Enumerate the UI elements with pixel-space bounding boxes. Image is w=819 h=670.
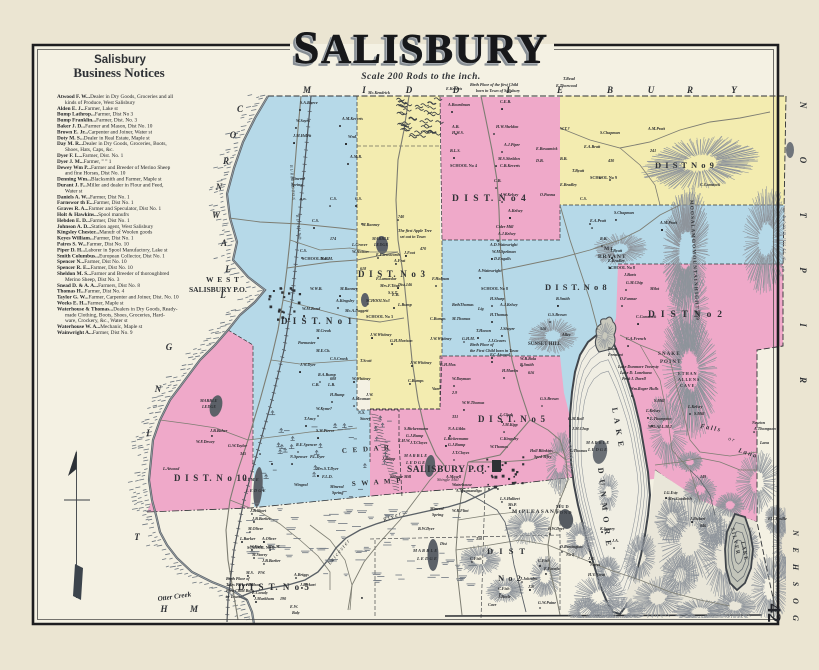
svg-text:A.Thompson: A.Thompson bbox=[753, 426, 776, 431]
svg-text:C.S.: C.S. bbox=[312, 218, 319, 223]
svg-text:H.W.S.: H.W.S. bbox=[451, 130, 464, 135]
svg-text:F.Lamordur: F.Lamordur bbox=[376, 276, 397, 281]
svg-text:MARBLE: MARBLE bbox=[199, 398, 218, 403]
svg-text:W E S T: W E S T bbox=[206, 275, 240, 284]
svg-text:608: 608 bbox=[330, 376, 336, 381]
svg-text:L.Thomas: L.Thomas bbox=[569, 448, 588, 453]
svg-text:J.B.Baher: J.B.Baher bbox=[209, 428, 228, 433]
svg-text:L.Bickermann: L.Bickermann bbox=[443, 436, 469, 441]
svg-text:E.Bradley: E.Bradley bbox=[607, 258, 625, 263]
svg-text:Lana: Lana bbox=[759, 440, 769, 445]
svg-text:M: M bbox=[302, 85, 312, 95]
svg-text:LEDGE: LEDGE bbox=[201, 404, 216, 409]
svg-text:D I S T. N o 10: D I S T. N o 10 bbox=[174, 473, 248, 483]
svg-text:Cave: Cave bbox=[488, 602, 497, 607]
svg-text:L.Barker: L.Barker bbox=[239, 536, 256, 541]
svg-text:D I S T. N o 8: D I S T. N o 8 bbox=[545, 282, 608, 292]
svg-text:J.T.Cloyes: J.T.Cloyes bbox=[409, 440, 428, 445]
svg-text:Tales Parker the: Tales Parker the bbox=[226, 582, 254, 587]
svg-text:M.S.: M.S. bbox=[245, 570, 254, 575]
svg-text:Storey: Storey bbox=[360, 416, 371, 421]
svg-text:W.M.Bond: W.M.Bond bbox=[302, 306, 321, 311]
svg-text:R.B.: R.B. bbox=[600, 236, 608, 241]
svg-text:Lake Dunmore Travesty: Lake Dunmore Travesty bbox=[617, 364, 659, 369]
svg-text:241: 241 bbox=[649, 148, 656, 153]
svg-text:P O I N T: P O I N T bbox=[660, 360, 681, 365]
svg-text:J.M.Chop: J.M.Chop bbox=[571, 426, 589, 431]
svg-text:P.L.Dyer: P.L.Dyer bbox=[310, 454, 325, 459]
svg-text:T.Honon: T.Honon bbox=[476, 328, 492, 333]
svg-text:M A R B L E: M A R B L E bbox=[412, 548, 437, 553]
svg-text:No 2: No 2 bbox=[565, 552, 574, 557]
svg-text:Holl Blinkins: Holl Blinkins bbox=[529, 448, 553, 453]
svg-text:SUNSET HILL: SUNSET HILL bbox=[528, 342, 562, 347]
svg-text:Birth Place of the first Child: Birth Place of the first Child bbox=[469, 82, 519, 87]
svg-text:N o 2: N o 2 bbox=[498, 573, 522, 583]
svg-text:E.Keverts: E.Keverts bbox=[445, 86, 463, 91]
svg-text:H.Thomas: H.Thomas bbox=[489, 312, 508, 317]
svg-text:J.Rickart: J.Rickart bbox=[299, 582, 316, 587]
svg-text:C.Fish: C.Fish bbox=[470, 556, 482, 561]
svg-text:M t P L E A S A N T: M t P L E A S A N T bbox=[512, 509, 559, 515]
svg-text:S.W.Pierce: S.W.Pierce bbox=[316, 428, 335, 433]
svg-text:in Town: in Town bbox=[226, 594, 240, 599]
svg-text:331: 331 bbox=[451, 414, 458, 419]
svg-text:W.F.Dewey: W.F.Dewey bbox=[196, 439, 215, 444]
svg-text:Birth Place of: Birth Place of bbox=[469, 342, 494, 347]
svg-text:SALISBURY: SALISBURY bbox=[293, 22, 548, 74]
svg-text:C.B.Keverts: C.B.Keverts bbox=[500, 163, 520, 168]
svg-text:Waterhouse: Waterhouse bbox=[452, 482, 472, 487]
svg-text:L E D G E: L E D G E bbox=[416, 556, 437, 561]
svg-text:S.Bickermann: S.Bickermann bbox=[404, 426, 429, 431]
svg-text:E.H.W.: E.H.W. bbox=[397, 438, 410, 443]
svg-text:L: L bbox=[224, 264, 231, 274]
svg-text:516: 516 bbox=[540, 326, 547, 331]
svg-text:W.Thomas: W.Thomas bbox=[490, 444, 508, 449]
svg-text:Milot: Milot bbox=[649, 286, 660, 291]
svg-text:C: C bbox=[237, 104, 244, 114]
svg-text:C.S.: C.S. bbox=[580, 196, 587, 201]
svg-text:T: T bbox=[134, 532, 140, 542]
svg-text:O.Fannar: O.Fannar bbox=[620, 296, 637, 301]
svg-text:J.Boyle: J.Boyle bbox=[497, 594, 511, 599]
svg-text:L E D G E: L E D G E bbox=[245, 488, 266, 493]
svg-text:BethThomas: BethThomas bbox=[451, 302, 474, 307]
svg-text:W.Sayes: W.Sayes bbox=[296, 118, 310, 123]
svg-text:N.Spenser: N.Spenser bbox=[289, 454, 308, 459]
svg-text:D I S T: D I S T bbox=[487, 546, 527, 556]
svg-text:P.W.: P.W. bbox=[258, 570, 265, 575]
svg-text:K.Severy: K.Severy bbox=[599, 526, 615, 531]
svg-text:A.Kelsey: A.Kelsey bbox=[507, 208, 523, 213]
svg-text:LEDGE: LEDGE bbox=[373, 242, 388, 247]
svg-text:T.Ancy: T.Ancy bbox=[304, 416, 316, 421]
svg-text:M.Thomas: M.Thomas bbox=[451, 316, 471, 321]
svg-text:M: M bbox=[189, 604, 199, 614]
svg-text:Roun: Roun bbox=[608, 346, 618, 351]
svg-text:L.Grover: L.Grover bbox=[351, 242, 368, 247]
svg-text:B.B.: B.B. bbox=[559, 156, 568, 161]
svg-text:C A V E: C A V E bbox=[680, 383, 695, 388]
svg-text:L E D G E: L E D G E bbox=[587, 447, 607, 452]
svg-text:Alley: Alley bbox=[561, 332, 571, 337]
svg-text:D I S T. N o 1: D I S T. N o 1 bbox=[281, 316, 353, 326]
svg-text:W.T.?: W.T.? bbox=[560, 126, 570, 131]
svg-text:C.Bumps: C.Bumps bbox=[408, 378, 424, 383]
svg-text:SCHOOLNo3: SCHOOLNo3 bbox=[366, 298, 390, 303]
svg-text:A.Frat: A.Frat bbox=[393, 258, 406, 263]
svg-text:E.A.Bratt: E.A.Bratt bbox=[583, 144, 601, 149]
svg-text:S: S bbox=[791, 582, 800, 587]
svg-text:SCHOOL No 8: SCHOOL No 8 bbox=[481, 286, 508, 291]
svg-text:I.G.Esty: I.G.Esty bbox=[663, 490, 678, 495]
svg-text:J.Shayer: J.Shayer bbox=[499, 326, 515, 331]
svg-text:Mrs.S.T.Dyer: Mrs.S.T.Dyer bbox=[315, 466, 339, 471]
svg-text:G.M.Roll: G.M.Roll bbox=[568, 416, 585, 421]
svg-text:E.Thorwood: E.Thorwood bbox=[555, 83, 578, 88]
svg-text:B.L.S.: B.L.S. bbox=[449, 148, 461, 153]
svg-text:L E D G E: L E D G E bbox=[405, 460, 425, 465]
svg-text:T.Read: T.Read bbox=[563, 76, 576, 81]
svg-text:350: 350 bbox=[475, 536, 482, 541]
svg-text:J.Markham: J.Markham bbox=[253, 596, 274, 601]
svg-text:G.H.Morison: G.H.Morison bbox=[390, 338, 413, 343]
svg-text:R.E.Spencer: R.E.Spencer bbox=[296, 442, 318, 447]
svg-text:J.Bump: J.Bump bbox=[381, 456, 395, 461]
svg-text:M.Storey: M.Storey bbox=[251, 552, 268, 557]
svg-text:T.Scott: T.Scott bbox=[360, 358, 372, 363]
svg-text:Mt.P.: Mt.P. bbox=[507, 502, 517, 507]
svg-text:618: 618 bbox=[360, 266, 366, 271]
svg-text:S.S.T.: S.S.T. bbox=[388, 290, 398, 295]
svg-text:J.W.Whitney: J.W.Whitney bbox=[429, 336, 452, 341]
svg-text:S.Chapman: S.Chapman bbox=[600, 130, 621, 135]
svg-text:G.M.Chip: G.M.Chip bbox=[626, 280, 643, 285]
svg-text:345: 345 bbox=[239, 451, 246, 456]
svg-text:Mrs.M.: Mrs.M. bbox=[267, 544, 281, 549]
svg-text:P: P bbox=[798, 267, 808, 273]
svg-text:Parmaster: Parmaster bbox=[298, 340, 316, 345]
svg-text:C.S.: C.S. bbox=[355, 196, 362, 201]
svg-text:A.Mosell: A.Mosell bbox=[445, 474, 462, 479]
svg-text:O: O bbox=[791, 598, 800, 604]
svg-text:J.W.: J.W. bbox=[365, 392, 373, 397]
svg-text:C.B.: C.B. bbox=[312, 382, 320, 387]
svg-text:A.Kingsley: A.Kingsley bbox=[335, 298, 354, 303]
svg-text:J.Rickert: J.Rickert bbox=[689, 516, 706, 521]
svg-text:J.R.: J.R. bbox=[587, 556, 595, 561]
svg-text:Lake D. Lonehana: Lake D. Lonehana bbox=[619, 370, 652, 375]
svg-text:M U D: M U D bbox=[556, 504, 569, 509]
svg-text:P O N D: P O N D bbox=[556, 510, 572, 515]
svg-text:M.Creak: M.Creak bbox=[315, 328, 332, 333]
svg-text:W.W.B.: W.W.B. bbox=[310, 286, 322, 291]
svg-text:C.Fish: C.Fish bbox=[538, 558, 550, 563]
svg-text:Spring: Spring bbox=[332, 490, 343, 495]
svg-text:Vam: Vam bbox=[432, 386, 440, 391]
svg-text:Shingle Mill: Shingle Mill bbox=[390, 474, 412, 479]
svg-text:T.Byatt: T.Byatt bbox=[572, 168, 585, 173]
svg-text:Peak I. Dorell: Peak I. Dorell bbox=[622, 376, 647, 381]
svg-text:C.S.: C.S. bbox=[330, 196, 337, 201]
svg-text:F.C.Atwood: F.C.Atwood bbox=[490, 352, 511, 357]
svg-text:SALISBURY P.O.: SALISBURY P.O. bbox=[189, 285, 247, 294]
svg-text:616: 616 bbox=[528, 370, 535, 375]
svg-text:Scale 200 Rods to the inch.: Scale 200 Rods to the inch. bbox=[361, 72, 481, 82]
svg-text:N: N bbox=[798, 101, 808, 109]
svg-text:D.Engalls: D.Engalls bbox=[493, 256, 511, 261]
svg-text:Business Notices: Business Notices bbox=[73, 65, 164, 80]
svg-text:149: 149 bbox=[700, 474, 706, 479]
svg-text:W.W.Thomas: W.W.Thomas bbox=[462, 400, 485, 405]
svg-text:C.Comstock: C.Comstock bbox=[700, 182, 721, 187]
svg-text:The first Apple Tree: The first Apple Tree bbox=[398, 228, 432, 233]
svg-text:L.Clark: L.Clark bbox=[499, 412, 514, 417]
svg-text:G.S.Brown: G.S.Brown bbox=[548, 312, 567, 317]
svg-text:J.W.Dyer: J.W.Dyer bbox=[299, 362, 316, 367]
svg-text:J.Barts: J.Barts bbox=[623, 272, 637, 277]
svg-text:B.W.Dyer: B.W.Dyer bbox=[547, 526, 565, 531]
svg-text:J.P.: J.P. bbox=[527, 584, 534, 589]
svg-text:R: R bbox=[686, 85, 693, 95]
svg-text:A.J.Kelsey: A.J.Kelsey bbox=[499, 302, 518, 307]
svg-text:J.M.Holett: J.M.Holett bbox=[292, 133, 312, 138]
svg-text:E T H A N: E T H A N bbox=[678, 371, 696, 376]
svg-text:E.Bowamick: E.Bowamick bbox=[535, 146, 558, 151]
svg-text:F.Holman: F.Holman bbox=[432, 276, 450, 281]
svg-text:E.Farnsworth: E.Farnsworth bbox=[375, 252, 401, 257]
svg-text:J.Johndro: J.Johndro bbox=[519, 576, 537, 581]
svg-text:W.Whitney: W.Whitney bbox=[352, 376, 371, 381]
svg-text:M.Ranney: M.Ranney bbox=[339, 286, 358, 291]
svg-text:W.R.Flint: W.R.Flint bbox=[452, 508, 469, 513]
svg-text:C.Kingsley: C.Kingsley bbox=[500, 436, 518, 441]
svg-text:G: G bbox=[791, 615, 800, 621]
svg-text:E: E bbox=[791, 546, 800, 552]
svg-text:F.L.D.: F.L.D. bbox=[322, 474, 333, 479]
svg-text:M A R B L E: M A R B L E bbox=[403, 453, 427, 458]
svg-text:S.A.Pierce: S.A.Pierce bbox=[300, 100, 318, 105]
svg-text:430: 430 bbox=[607, 158, 614, 163]
svg-text:Newton: Newton bbox=[751, 420, 766, 425]
svg-text:n.n.: n.n. bbox=[300, 196, 307, 201]
svg-text:set out in Town: set out in Town bbox=[399, 234, 426, 239]
svg-text:W.M.Spelman: W.M.Spelman bbox=[492, 249, 517, 254]
svg-text:Dist: Dist bbox=[439, 541, 448, 546]
svg-text:Sprd Mfry: Sprd Mfry bbox=[534, 454, 552, 459]
svg-text:E.A.Pratt: E.A.Pratt bbox=[589, 218, 607, 223]
svg-text:Baly: Baly bbox=[291, 610, 300, 615]
svg-text:E.W.: E.W. bbox=[289, 604, 298, 609]
svg-text:Dist.146: Dist.146 bbox=[397, 282, 413, 287]
svg-text:SCHOOL No 8: SCHOOL No 8 bbox=[608, 265, 635, 270]
svg-text:M.B.M.: M.B.M. bbox=[319, 256, 333, 261]
svg-text:T.Byatt: T.Byatt bbox=[610, 248, 623, 253]
svg-text:N.A.Gibbs: N.A.Gibbs bbox=[447, 426, 466, 431]
svg-text:A.Wainwright: A.Wainwright bbox=[477, 268, 502, 273]
svg-text:42: 42 bbox=[763, 604, 784, 623]
svg-text:Mineral: Mineral bbox=[290, 176, 306, 181]
svg-text:G.H.Mor.: G.H.Mor. bbox=[440, 362, 456, 367]
svg-text:Mineral: Mineral bbox=[329, 484, 345, 489]
svg-text:L I M E: L I M E bbox=[243, 477, 259, 482]
svg-text:G.H.M.: G.H.M. bbox=[462, 336, 475, 341]
svg-text:Wainwright A...Farmer, Dist No: Wainwright A...Farmer, Dist No. 9 bbox=[57, 330, 133, 336]
svg-text:I: I bbox=[361, 85, 366, 95]
svg-text:J.Foot: J.Foot bbox=[403, 250, 416, 255]
svg-text:Mc.A.Daggett: Mc.A.Daggett bbox=[344, 308, 369, 313]
svg-text:O: O bbox=[230, 130, 237, 140]
svg-text:J.B.Barber: J.B.Barber bbox=[261, 558, 281, 563]
svg-text:J.A.: J.A. bbox=[611, 538, 619, 543]
svg-text:born in Town of Salisbury: born in Town of Salisbury bbox=[476, 88, 520, 93]
svg-text:M A R B L E: M A R B L E bbox=[585, 440, 609, 445]
svg-text:Mrs.F.Titus: Mrs.F.Titus bbox=[379, 283, 400, 288]
svg-text:E.Bradley: E.Bradley bbox=[559, 182, 577, 187]
svg-text:H.Martin: H.Martin bbox=[501, 368, 519, 373]
svg-text:H: H bbox=[791, 563, 800, 571]
svg-text:B.Smith: B.Smith bbox=[555, 296, 570, 301]
svg-text:A.M.Pratt: A.M.Pratt bbox=[659, 220, 678, 225]
svg-text:U: U bbox=[648, 85, 655, 95]
svg-text:H.Sharp: H.Sharp bbox=[489, 296, 504, 301]
svg-text:R: R bbox=[222, 156, 229, 166]
svg-text:E.Fansho: E.Fansho bbox=[543, 566, 561, 571]
svg-text:470: 470 bbox=[419, 246, 426, 251]
svg-text:Wnd.: Wnd. bbox=[348, 134, 357, 139]
svg-text:D: D bbox=[405, 85, 413, 95]
svg-text:Wm.Roger Hulls: Wm.Roger Hulls bbox=[630, 386, 659, 391]
svg-text:C.Fish: C.Fish bbox=[498, 586, 510, 591]
svg-text:H: H bbox=[159, 604, 168, 614]
svg-text:G.J.Bump: G.J.Bump bbox=[448, 442, 465, 447]
svg-text:046: 046 bbox=[700, 523, 707, 528]
svg-text:C.Bumps: C.Bumps bbox=[430, 316, 446, 321]
svg-text:Wingral: Wingral bbox=[294, 482, 309, 487]
svg-text:L.S.Halbert: L.S.Halbert bbox=[499, 496, 521, 501]
svg-text:H.W.Sheldon: H.W.Sheldon bbox=[495, 124, 519, 129]
svg-text:Spring: Spring bbox=[291, 182, 302, 187]
svg-text:M.Oliver: M.Oliver bbox=[247, 526, 264, 531]
svg-text:D.B.: D.B. bbox=[535, 158, 544, 163]
svg-text:G.J.Bump: G.J.Bump bbox=[406, 433, 423, 438]
svg-text:A.J.Kelsey: A.J.Kelsey bbox=[497, 231, 516, 236]
svg-text:A.M.Pratt: A.M.Pratt bbox=[647, 126, 666, 131]
svg-text:A.D.Wainwright: A.D.Wainwright bbox=[489, 242, 518, 247]
svg-text:SCHOOL No 3: SCHOOL No 3 bbox=[366, 314, 393, 319]
svg-text:C.E.B.: C.E.B. bbox=[500, 99, 511, 104]
svg-text:Cider Mill: Cider Mill bbox=[496, 224, 514, 229]
svg-text:T: T bbox=[798, 212, 808, 218]
svg-text:First Child Born: First Child Born bbox=[226, 588, 255, 593]
svg-text:A.M.R.: A.M.R. bbox=[349, 154, 362, 159]
svg-text:C.B.: C.B. bbox=[494, 178, 502, 183]
svg-text:C.S.Cronk: C.S.Cronk bbox=[330, 356, 349, 361]
svg-text:Mc.Kendrick: Mc.Kendrick bbox=[367, 90, 391, 95]
svg-text:O.Panna: O.Panna bbox=[540, 192, 555, 197]
svg-text:L.Atwood: L.Atwood bbox=[162, 466, 180, 471]
svg-text:L.Bump: L.Bump bbox=[397, 302, 412, 307]
svg-text:S.Chapman: S.Chapman bbox=[614, 210, 635, 215]
svg-text:D I S T N o 2: D I S T N o 2 bbox=[648, 310, 724, 320]
svg-text:Spring: Spring bbox=[432, 512, 443, 517]
svg-text:O: O bbox=[798, 157, 808, 164]
svg-text:W.Dayman: W.Dayman bbox=[452, 376, 471, 381]
svg-text:Fremont: Fremont bbox=[608, 352, 624, 357]
svg-text:L.Thompson: L.Thompson bbox=[649, 416, 672, 421]
svg-text:H.V.Norat: H.V.Norat bbox=[587, 572, 606, 577]
svg-text:SCHOOL No 9: SCHOOL No 9 bbox=[590, 175, 617, 180]
svg-text:MARBLE: MARBLE bbox=[371, 236, 390, 241]
svg-text:J.B.Short: J.B.Short bbox=[249, 508, 267, 513]
svg-text:740: 740 bbox=[398, 214, 404, 219]
svg-text:D I S T N o 9: D I S T N o 9 bbox=[655, 160, 715, 170]
svg-text:A.Briggs: A.Briggs bbox=[293, 572, 309, 577]
svg-text:L.Kelsey: L.Kelsey bbox=[687, 404, 703, 409]
svg-text:A: A bbox=[220, 238, 227, 248]
svg-text:H.Bump: H.Bump bbox=[329, 392, 344, 397]
svg-text:R: R bbox=[798, 376, 808, 383]
svg-text:W: W bbox=[212, 210, 221, 220]
svg-text:W.B.Bola: W.B.Bola bbox=[520, 356, 536, 361]
svg-text:C.A.French: C.A.French bbox=[626, 336, 647, 341]
svg-text:G.W.Taylor: G.W.Taylor bbox=[228, 443, 248, 448]
svg-text:S N A K E: S N A K E bbox=[658, 352, 680, 357]
svg-text:SCHOOL No 4: SCHOOL No 4 bbox=[450, 163, 478, 168]
svg-text:J.B.Barker: J.B.Barker bbox=[251, 516, 271, 521]
svg-text:G.S.Brown: G.S.Brown bbox=[540, 396, 559, 401]
svg-text:J.T.Cloyes: J.T.Cloyes bbox=[451, 450, 470, 455]
svg-text:A.M.Keverts: A.M.Keverts bbox=[341, 116, 363, 121]
svg-text:L.Kelsey: L.Kelsey bbox=[645, 408, 661, 413]
svg-text:Lig: Lig bbox=[477, 306, 484, 311]
svg-text:L.B.: L.B. bbox=[327, 382, 335, 387]
svg-text:D.Remington: D.Remington bbox=[559, 544, 583, 549]
svg-text:C.S.: C.S. bbox=[300, 248, 307, 253]
svg-text:G: G bbox=[166, 342, 173, 352]
svg-text:A.Bourdman: A.Bourdman bbox=[447, 102, 471, 107]
svg-text:W.Kirly: W.Kirly bbox=[250, 544, 263, 549]
svg-text:A.Oliver: A.Oliver bbox=[261, 536, 277, 541]
svg-text:W.Kyme?: W.Kyme? bbox=[316, 406, 332, 411]
svg-text:G.W.Paine: G.W.Paine bbox=[538, 600, 556, 605]
svg-text:A L L E N S: A L L E N S bbox=[678, 377, 700, 382]
svg-text:J.W.Kelsey: J.W.Kelsey bbox=[499, 192, 519, 197]
svg-text:Mrs.Goodrich: Mrs.Goodrich bbox=[667, 496, 692, 501]
svg-text:El.Chasille: El.Chasille bbox=[767, 516, 787, 521]
svg-text:I: I bbox=[798, 322, 808, 327]
svg-text:M.E.Ch.: M.E.Ch. bbox=[315, 348, 330, 353]
svg-text:C.Comstock: C.Comstock bbox=[636, 314, 657, 319]
svg-text:N: N bbox=[215, 182, 223, 192]
svg-text:M.Ranney: M.Ranney bbox=[361, 222, 380, 227]
svg-text:S.Mill: S.Mill bbox=[654, 398, 665, 403]
svg-text:174: 174 bbox=[330, 236, 336, 241]
svg-text:M.S.Sheldon: M.S.Sheldon bbox=[497, 156, 521, 161]
svg-text:Mineral: Mineral bbox=[429, 506, 445, 511]
svg-text:A.Mosmandigo: A.Mosmandigo bbox=[455, 488, 482, 493]
svg-text:B: B bbox=[606, 85, 613, 95]
svg-text:J.W.Whitney: J.W.Whitney bbox=[409, 360, 432, 365]
svg-text:2.9: 2.9 bbox=[451, 390, 457, 395]
svg-text:I: I bbox=[145, 428, 150, 438]
svg-text:Birth Place of: Birth Place of bbox=[225, 576, 250, 581]
svg-text:190: 190 bbox=[280, 596, 286, 601]
svg-text:J.M.Kipp: J.M.Kipp bbox=[501, 422, 518, 427]
svg-text:N.S.: N.S. bbox=[357, 410, 365, 415]
svg-text:B.W.Dyer: B.W.Dyer bbox=[417, 526, 435, 531]
